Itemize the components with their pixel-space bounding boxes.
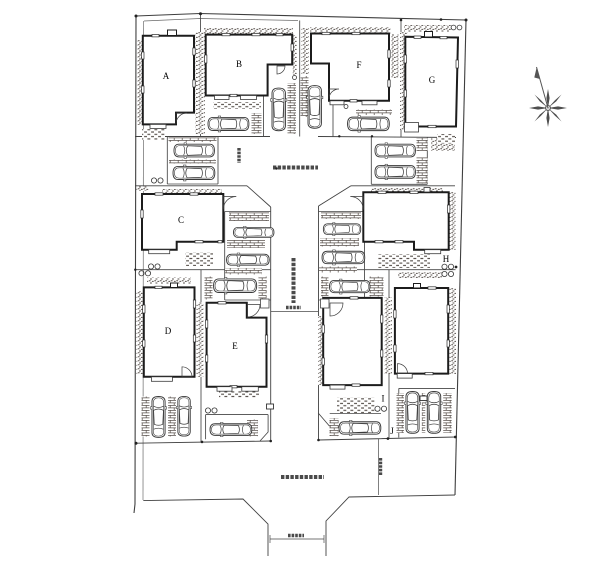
svg-text:C: C (178, 215, 184, 225)
svg-text:F: F (356, 60, 361, 70)
svg-text:G: G (429, 75, 436, 85)
svg-text:H: H (443, 254, 450, 264)
svg-text:D: D (165, 326, 172, 336)
svg-text:B: B (236, 59, 242, 69)
svg-text:E: E (232, 341, 238, 351)
svg-text:I: I (382, 394, 385, 404)
svg-text:A: A (163, 71, 170, 81)
svg-text:J: J (390, 426, 394, 436)
